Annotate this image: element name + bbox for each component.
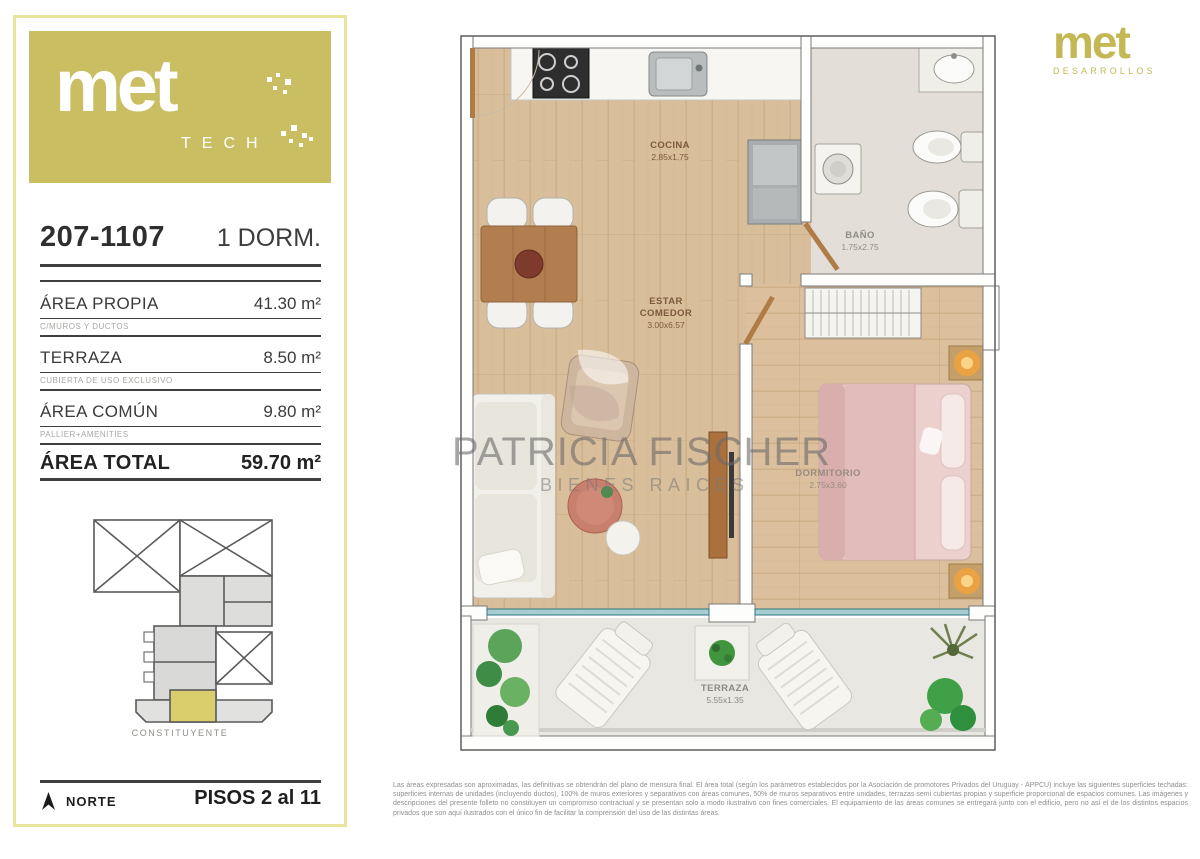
watermark-tagline: BIENES RAICES bbox=[540, 475, 750, 496]
total-value: 59.70 m² bbox=[241, 452, 321, 475]
area-row: TERRAZA 8.50 m² bbox=[40, 348, 321, 368]
area-note: PALLIER+AMENITIES bbox=[40, 430, 129, 439]
room-dims: 2.85x1.75 bbox=[630, 152, 710, 163]
dev-logo-sub: DESARROLLOS bbox=[1053, 66, 1183, 76]
met-logo-sub: TECH bbox=[181, 135, 269, 153]
toilet-icon bbox=[908, 190, 985, 228]
dev-logo-word: met bbox=[1053, 22, 1183, 63]
area-total-row: ÁREA TOTAL 59.70 m² bbox=[40, 452, 321, 475]
kitchen-counter bbox=[511, 46, 807, 100]
divider bbox=[40, 780, 321, 783]
met-logo-word: met bbox=[55, 49, 175, 123]
area-value: 8.50 m² bbox=[263, 348, 321, 368]
north-label: NORTE bbox=[66, 794, 117, 809]
divider bbox=[40, 372, 321, 373]
met-tech-logo: met TECH bbox=[29, 31, 331, 183]
divider bbox=[40, 280, 321, 282]
room-dims: 2.75x3.60 bbox=[773, 480, 883, 491]
room-name: TERRAZA bbox=[685, 683, 765, 695]
room-dims: 5.55x1.35 bbox=[685, 695, 765, 706]
room-label-bano: BAÑO 1.75x2.75 bbox=[820, 230, 900, 253]
north-indicator: NORTE bbox=[40, 791, 117, 811]
room-name: COCINA bbox=[630, 140, 710, 152]
brochure-page: met TECH 207-1107 1 DORM. bbox=[0, 0, 1200, 859]
unit-type: 1 DORM. bbox=[217, 224, 321, 253]
divider bbox=[40, 426, 321, 427]
logo-dots-icon bbox=[281, 123, 321, 153]
room-dims: 1.75x2.75 bbox=[820, 242, 900, 253]
divider bbox=[40, 389, 321, 391]
area-value: 41.30 m² bbox=[254, 294, 321, 314]
area-label: TERRAZA bbox=[40, 348, 122, 368]
floor-plan: COCINA 2.85x1.75 BAÑO 1.75x2.75 ESTAR CO… bbox=[453, 28, 1003, 758]
room-name: BAÑO bbox=[820, 230, 900, 242]
terrace-side-table bbox=[695, 626, 749, 680]
room-name: ESTAR COMEDOR bbox=[631, 296, 701, 320]
room-dims: 3.00x6.57 bbox=[631, 320, 701, 331]
divider bbox=[40, 478, 321, 481]
bath-sink-icon bbox=[919, 46, 989, 92]
washer-icon bbox=[815, 144, 861, 194]
unit-number: 207-1107 bbox=[40, 221, 165, 254]
area-note: C/MUROS Y DUCTOS bbox=[40, 322, 129, 331]
bidet-icon bbox=[913, 131, 985, 163]
building-keyplan bbox=[84, 514, 284, 731]
divider bbox=[40, 335, 321, 337]
room-label-cocina: COCINA 2.85x1.75 bbox=[630, 140, 710, 163]
room-label-terraza: TERRAZA 5.55x1.35 bbox=[685, 683, 765, 706]
keyplan-svg bbox=[84, 514, 284, 726]
watermark-logo-icon bbox=[540, 348, 650, 433]
floors-label: PISOS 2 al 11 bbox=[194, 787, 321, 810]
closet bbox=[805, 288, 921, 338]
divider bbox=[40, 318, 321, 319]
info-card: met TECH 207-1107 1 DORM. bbox=[13, 15, 347, 827]
divider bbox=[40, 264, 321, 267]
area-row: ÁREA COMÚN 9.80 m² bbox=[40, 402, 321, 422]
area-note: CUBIERTA DE USO EXCLUSIVO bbox=[40, 376, 173, 385]
logo-dots-icon bbox=[267, 73, 301, 99]
area-label: ÁREA PROPIA bbox=[40, 294, 159, 314]
watermark-name: PATRICIA FISCHER bbox=[452, 430, 831, 475]
divider bbox=[40, 443, 321, 445]
area-label: ÁREA COMÚN bbox=[40, 402, 158, 422]
floor-plan-svg bbox=[453, 28, 1003, 758]
north-arrow-icon bbox=[40, 791, 57, 811]
fridge-icon bbox=[748, 140, 802, 224]
unit-header: 207-1107 1 DORM. bbox=[40, 221, 321, 254]
met-desarrollos-logo: met DESARROLLOS bbox=[1053, 22, 1183, 76]
area-row: ÁREA PROPIA 41.30 m² bbox=[40, 294, 321, 314]
terrace-planter bbox=[473, 624, 539, 736]
total-label: ÁREA TOTAL bbox=[40, 452, 170, 475]
room-label-estar: ESTAR COMEDOR 3.00x6.57 bbox=[631, 296, 701, 330]
disclaimer-text: Las áreas expresadas son aproximadas, la… bbox=[393, 781, 1188, 818]
street-label: CONSTITUYENTE bbox=[60, 728, 300, 738]
area-value: 9.80 m² bbox=[263, 402, 321, 422]
